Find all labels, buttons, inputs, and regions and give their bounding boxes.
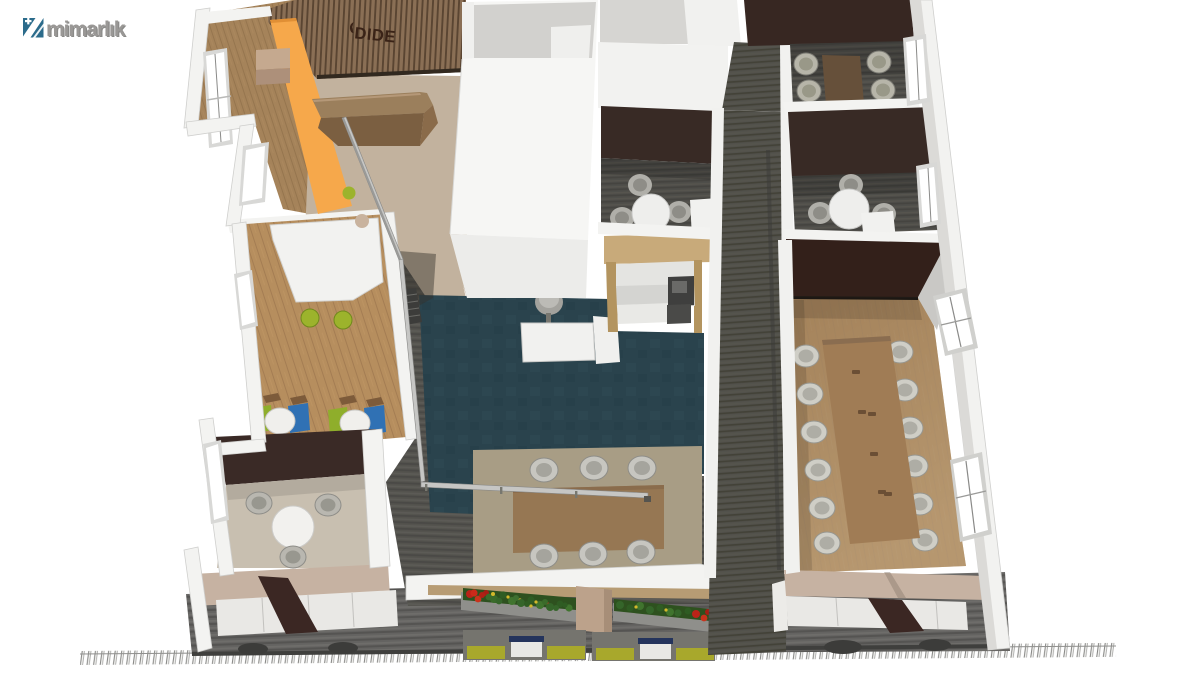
svg-text:mimarlık: mimarlık	[46, 18, 126, 41]
